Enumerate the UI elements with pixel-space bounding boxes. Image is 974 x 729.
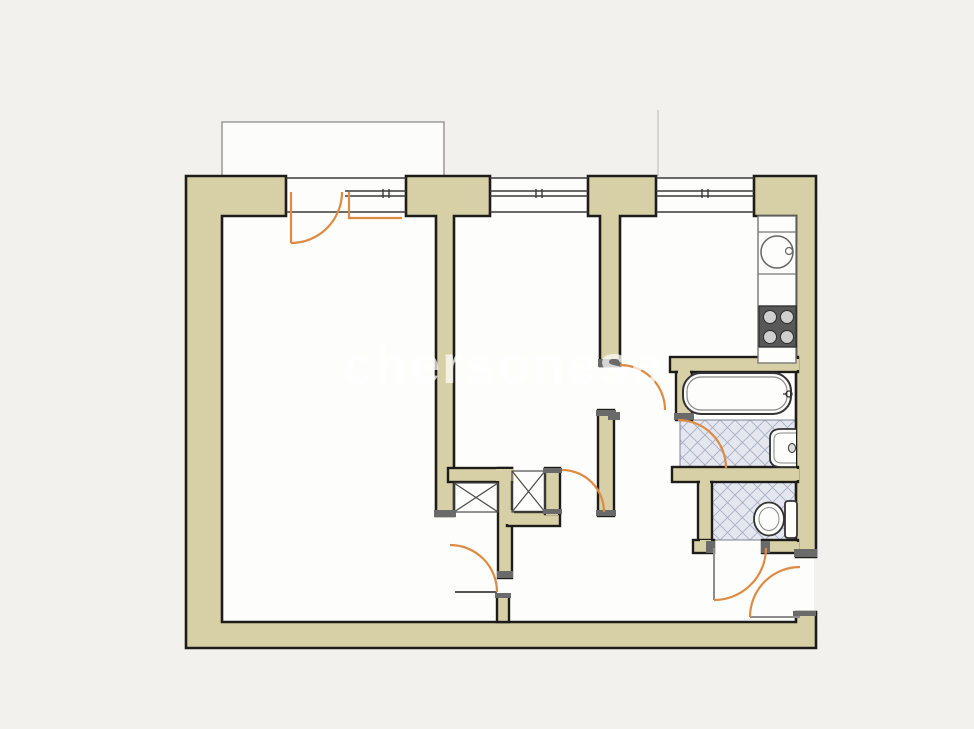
wall-seam-patch [700, 479, 710, 485]
floor-plan-page: chersonese [0, 0, 974, 729]
wall-end-cap [793, 611, 816, 616]
wall-seam-patch [793, 469, 799, 480]
wall-end-cap [794, 549, 817, 557]
wall-end-cap [608, 412, 620, 420]
wall-end-cap [434, 510, 456, 517]
wall-end-cap [674, 413, 694, 420]
bathroom-wc-divider [672, 467, 798, 482]
wall-end-cap [596, 510, 616, 516]
watermark-text: chersonese [343, 335, 663, 395]
hall-wall [598, 410, 614, 516]
wall-end-cap [497, 571, 513, 578]
wc-floor-tiles [712, 482, 796, 540]
wall-end-cap [543, 509, 562, 514]
stove-burner [781, 311, 794, 324]
wc-left-wall [698, 482, 712, 545]
stove-burner [764, 311, 777, 324]
stove-burner [764, 331, 777, 344]
closet-right-wall [545, 468, 560, 514]
floor-plan-svg: chersonese [0, 0, 974, 729]
wall-seam-patch [496, 469, 514, 481]
stove-burner [781, 331, 794, 344]
bathtub [683, 373, 791, 414]
kitchen-sink-tap [786, 248, 793, 255]
wall-seam-patch [678, 370, 690, 375]
hall-stem-wall [497, 595, 509, 622]
toilet-tank [785, 501, 797, 538]
washbasin-tap [789, 444, 796, 453]
wall-end-cap [543, 468, 562, 473]
balcony-floor [222, 122, 444, 178]
wall-end-cap [495, 593, 511, 598]
